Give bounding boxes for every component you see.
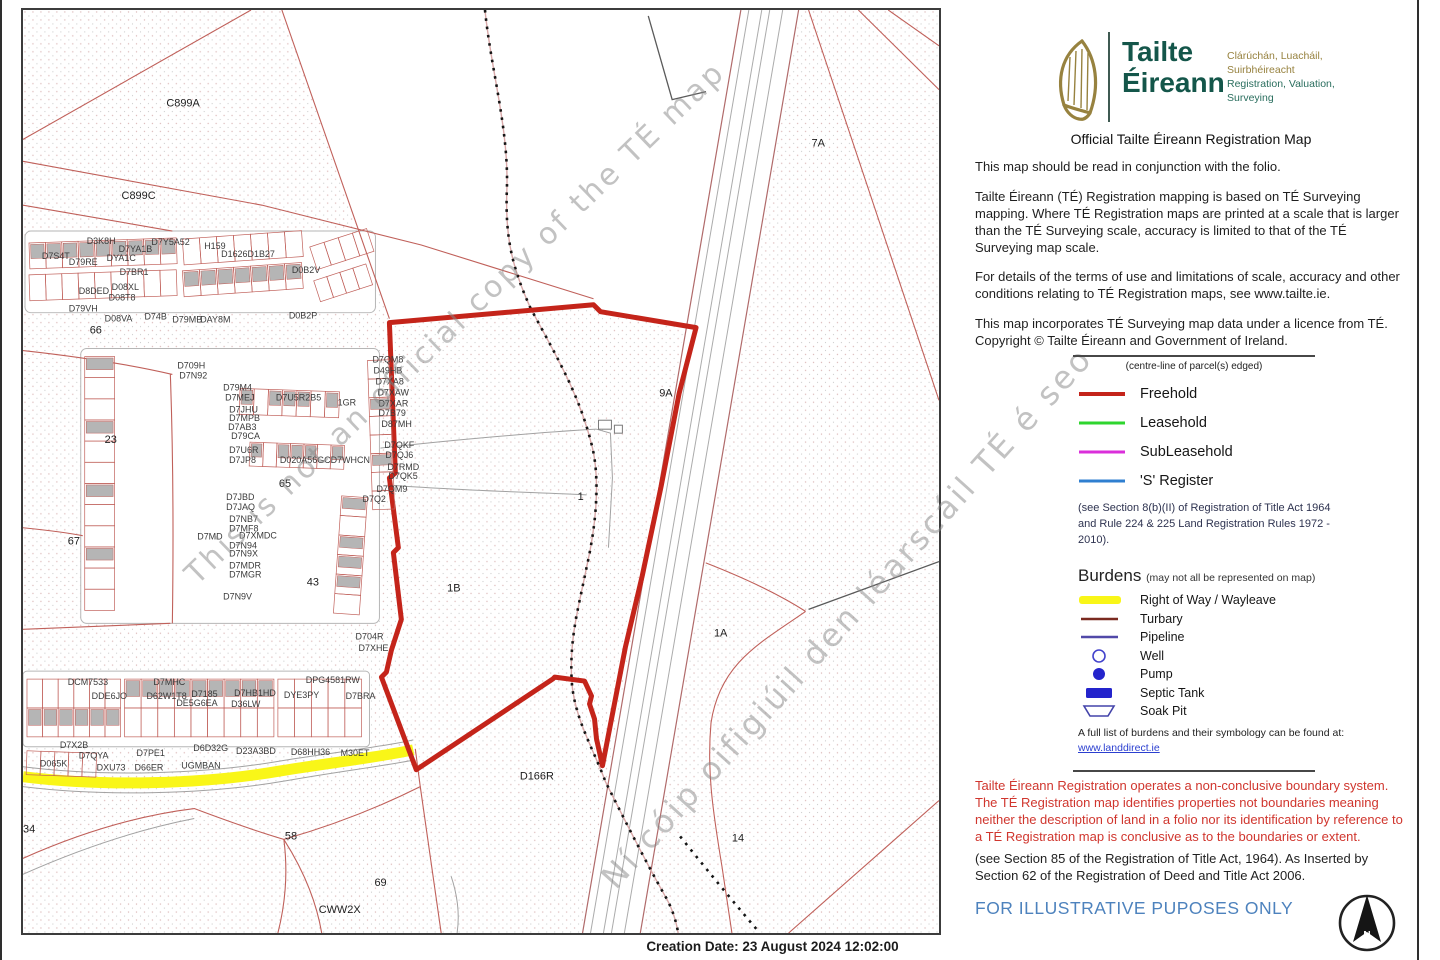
parcel-code-label: D08VA [105, 314, 133, 324]
burden-item-label: Turbary [1140, 612, 1183, 626]
burden-item-well: Well [1078, 647, 1276, 666]
parcel-code-label: D7X2B [60, 740, 88, 750]
plan-number-label: 7A [812, 137, 826, 149]
yellow-symbol-icon [1078, 592, 1124, 608]
parcel-code-label: D7JAQ [226, 502, 255, 512]
harp-logo-icon [1048, 35, 1106, 125]
parcel-code-label: D020A56GC [280, 455, 331, 465]
parcel-code-label: D7N92 [179, 370, 207, 380]
legend-line-swatch [1078, 447, 1126, 457]
legend-subtitle: (centre-line of parcel(s) edged) [1073, 361, 1315, 372]
burden-item-soak-pit: Soak Pit [1078, 702, 1276, 721]
burden-item-pump: Pump [1078, 665, 1276, 684]
parcel-code-label: D7WHCN [331, 455, 370, 465]
burden-item-label: Pipeline [1140, 630, 1184, 644]
parcel-code-label: D7QM8 [372, 354, 403, 364]
burdens-footer-text: A full list of burdens and their symbolo… [1078, 727, 1344, 739]
burden-item-label: Septic Tank [1140, 686, 1204, 700]
burden-item-right-of-way---wayleave: Right of Way / Wayleave [1078, 591, 1276, 610]
parcel-code-label: UGMBAN [181, 761, 220, 771]
parcel-code-label: D49HB [373, 365, 402, 375]
plan-number-label: 58 [285, 830, 297, 842]
tagline-english-2: Surveying [1227, 92, 1335, 106]
parcel-code-label: D0B2P [289, 311, 317, 321]
parcel-code-label: D6D32G [193, 743, 228, 753]
plan-number-label: 1A [714, 627, 728, 639]
plan-number-label: 69 [374, 877, 386, 889]
parcel-code-label: 1GR [338, 397, 357, 407]
parcel-code-label: D7Y5A52 [151, 237, 189, 247]
parcel-code-label: D1626D1B27 [221, 249, 275, 259]
parcel-code-label: M30ET [341, 748, 370, 758]
tenure-legend: Freehold Leasehold SubLeasehold 'S' Regi… [1078, 379, 1233, 495]
legend-line-swatch [1078, 476, 1126, 486]
parcel-code-label: D8DED [79, 286, 110, 296]
burdens-heading-text: Burdens [1078, 566, 1141, 585]
parcel-code-label: DYE3PY [284, 690, 319, 700]
parcel-code-label: D68HH36 [291, 747, 330, 757]
plan-number-label: 34 [23, 823, 35, 835]
burden-item-label: Soak Pit [1140, 704, 1187, 718]
parcel-code-label: D3K8H [87, 236, 116, 246]
parcel-code-label: DYA1C [107, 253, 137, 263]
parcel-code-label: D74B [144, 312, 166, 322]
burdens-heading-note: (may not all be represented on map) [1146, 572, 1315, 584]
plan-number-label: 9A [659, 387, 673, 399]
well-symbol-icon [1078, 648, 1124, 664]
non-conclusive-warning: Tailte Éireann Registration operates a n… [975, 778, 1409, 846]
parcel-code-label: D7MGR [229, 570, 262, 580]
parcel-code-label: DPG4581RW [306, 675, 361, 685]
turbary-symbol-icon [1078, 611, 1124, 627]
parcel-code-label: D79MB [172, 315, 202, 325]
document-left-border [0, 0, 2, 960]
septic-symbol-icon [1078, 685, 1124, 701]
parcel-code-label: D7XHE [359, 643, 389, 653]
map-notes: This map should be read in conjunction w… [975, 159, 1407, 363]
parcel-code-label: D7BR1 [120, 267, 149, 277]
tagline-english-1: Registration, Valuation, [1227, 78, 1335, 92]
creation-date: Creation Date: 23 August 2024 12:02:00 [600, 939, 945, 954]
map-panel: C899AC899C7A66236765439A11B1AD166R145869… [21, 8, 941, 935]
parcel-code-label: D7XA8 [375, 376, 403, 386]
parcel-code-label: D79RE [69, 257, 98, 267]
brand-divider [1108, 32, 1110, 122]
tagline-irish-2: Suirbhéireacht [1227, 64, 1335, 78]
parcel-code-label: DDE6JO [92, 691, 127, 701]
burdens-footer: A full list of burdens and their symbolo… [1078, 726, 1348, 755]
parcel-code-label: D7MD [197, 532, 223, 542]
plan-number-label: 67 [68, 536, 80, 548]
parcel-code-label: D7XAR [378, 398, 408, 408]
north-arrow-icon: N [1336, 892, 1398, 954]
burden-item-turbary: Turbary [1078, 610, 1276, 629]
pump-symbol-icon [1078, 666, 1124, 682]
burdens-legend: Right of Way / Wayleave Turbary Pipeline… [1078, 591, 1276, 721]
soak-symbol-icon [1078, 703, 1124, 719]
legend-line-swatch [1078, 389, 1126, 399]
plan-number-label: 1B [447, 582, 460, 594]
parcel-code-label: D79M4 [223, 382, 252, 392]
plan-number-label: 43 [307, 577, 319, 589]
estate-north-street [25, 231, 375, 313]
landdirect-link[interactable]: www.landdirect.ie [1078, 742, 1160, 754]
parcel-code-label: D79VH [69, 304, 98, 314]
document-right-border [1417, 0, 1419, 960]
brand-line-2: Éireann [1122, 67, 1225, 98]
legend-statute-note: (see Section 8(b)(II) of Registration of… [1078, 501, 1333, 549]
parcel-code-label: D66ER [135, 763, 164, 773]
legend-item-subleasehold: SubLeasehold [1078, 437, 1233, 466]
parcel-code-label: D23A3BD [236, 746, 276, 756]
parcel-code-label: D7QM9 [376, 484, 407, 494]
parcel-code-label: D7MHC [153, 677, 185, 687]
parcel-code-label: DXU73 [97, 763, 126, 773]
parcel-code-label: D7N9V [223, 591, 252, 601]
note-scale: Tailte Éireann (TÉ) Registration mapping… [975, 189, 1407, 257]
registration-map-document: { "colors": { "freehold": "#c4241a", "le… [0, 0, 1440, 960]
tagline-irish-1: Clárúchán, Luacháil, [1227, 50, 1335, 64]
burden-item-label: Well [1140, 649, 1164, 663]
plan-number-label: 14 [732, 832, 744, 844]
page-title: Official Tailte Éireann Registration Map [965, 131, 1417, 147]
legend-item-label: 'S' Register [1140, 473, 1213, 489]
legend-divider-top [1073, 355, 1315, 357]
legend-item-freehold: Freehold [1078, 379, 1233, 408]
parcel-code-label: D7U5R2B5 [276, 392, 321, 402]
parcel-code-label: D7MEJ [225, 392, 254, 402]
parcel-code-label: D7XMDC [239, 531, 277, 541]
burden-item-pipeline: Pipeline [1078, 628, 1276, 647]
brand-line-1: Tailte [1122, 36, 1225, 67]
parcel-code-label: DCM7533 [68, 677, 108, 687]
illustrative-notice: FOR ILLUSTRATIVE PUPOSES ONLY [975, 898, 1293, 919]
burden-item-label: Pump [1140, 667, 1173, 681]
plan-number-label: 65 [279, 478, 291, 490]
burden-item-septic-tank: Septic Tank [1078, 684, 1276, 703]
parcel-code-label: D7QKF [384, 440, 414, 450]
legend-item-label: Leasehold [1140, 415, 1207, 431]
parcel-code-label: DE5G6EA [176, 698, 217, 708]
plan-number-label: C899A [166, 98, 200, 110]
plan-number-label: 1 [578, 491, 584, 503]
cadastral-map: C899AC899C7A66236765439A11B1AD166R145869… [23, 10, 939, 933]
parcel-code-label: D7B79 [378, 408, 405, 418]
brand-name: Tailte Éireann [1122, 36, 1225, 99]
parcel-code-label: D7N9X [229, 549, 258, 559]
legend-panel: Tailte Éireann Clárúchán, Luacháil, Suir… [965, 0, 1417, 960]
legend-item-leasehold: Leasehold [1078, 408, 1233, 437]
legend-item-label: SubLeasehold [1140, 444, 1233, 460]
burden-item-label: Right of Way / Wayleave [1140, 593, 1276, 607]
parcel-code-label: D7NB7 [229, 514, 258, 524]
parcel-code-label: D08XL [112, 282, 139, 292]
pipeline-symbol-icon [1078, 629, 1124, 645]
parcel-code-label: D7PE1 [137, 748, 165, 758]
parcel-code-label: D7QK5 [388, 471, 417, 481]
plan-number-label: CWW2X [319, 904, 362, 916]
parcel-code-label: D709H [177, 360, 205, 370]
burdens-heading: Burdens (may not all be represented on m… [1078, 566, 1315, 586]
parcel-code-label: D7QJ6 [385, 450, 413, 460]
legend-item--s--register: 'S' Register [1078, 466, 1233, 495]
parcel-code-label: D7HB1HD [234, 688, 276, 698]
parcel-code-label: D87MH [381, 419, 411, 429]
parcel-code-label: D36LW [231, 699, 261, 709]
parcel-code-label: D7S4T [42, 251, 70, 261]
parcel-code-label: D08T8 [109, 293, 136, 303]
statute-reference: (see Section 85 of the Registration of T… [975, 851, 1409, 885]
parcel-code-label: D704R [356, 631, 384, 641]
parcel-code-label: D7XAW [377, 387, 409, 397]
note-terms: For details of the terms of use and limi… [975, 269, 1407, 303]
legend-line-swatch [1078, 418, 1126, 428]
parcel-code-label: D79CA [231, 431, 260, 441]
parcel-code-label: D7U6R [229, 445, 259, 455]
legend-divider-bottom [1073, 770, 1315, 772]
plan-number-label: 66 [90, 325, 102, 337]
brand-tagline: Clárúchán, Luacháil, Suirbhéireacht Regi… [1227, 50, 1335, 105]
north-label: N [1363, 930, 1370, 941]
parcel-code-label: DAY8M [200, 315, 230, 325]
parcel-code-label: D065K [40, 759, 67, 769]
plan-number-label: 23 [105, 434, 117, 446]
plan-number-label: C899C [122, 190, 156, 202]
parcel-code-label: D0B2V [292, 265, 320, 275]
parcel-code-label: D7JP8 [229, 455, 256, 465]
note-copyright: This map incorporates TÉ Surveying map d… [975, 316, 1407, 350]
parcel-code-label: D7QYA [79, 751, 109, 761]
parcel-code-label: D7JBD [226, 492, 255, 502]
parcel-code-label: D7Q2 [363, 494, 386, 504]
note-folio: This map should be read in conjunction w… [975, 159, 1407, 176]
legend-item-label: Freehold [1140, 386, 1197, 402]
parcel-code-label: D7BRA [346, 691, 376, 701]
plan-number-label: D166R [520, 771, 554, 783]
